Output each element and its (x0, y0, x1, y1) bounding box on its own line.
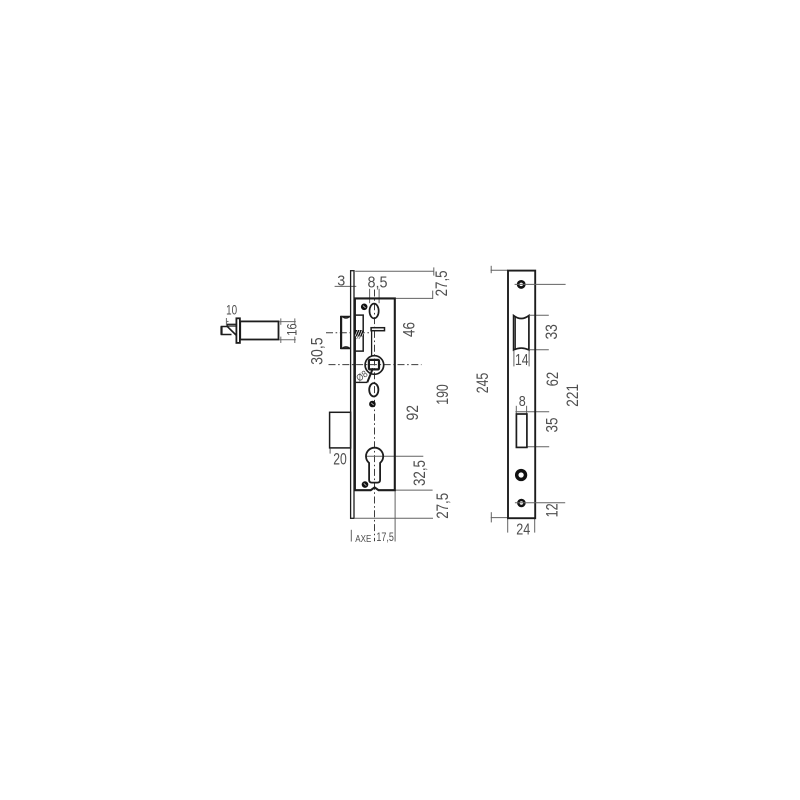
svg-text:24: 24 (516, 521, 530, 538)
svg-text:32,5: 32,5 (411, 460, 429, 486)
svg-text:AXE: AXE (355, 534, 371, 545)
svg-text:10: 10 (226, 303, 237, 318)
svg-text:8,5: 8,5 (368, 274, 388, 291)
svg-text:17,5: 17,5 (376, 532, 394, 544)
svg-text:33: 33 (543, 324, 561, 340)
svg-text:14: 14 (515, 352, 529, 369)
svg-text:12: 12 (543, 503, 561, 517)
svg-text:190: 190 (434, 384, 452, 405)
svg-text:27,5: 27,5 (434, 493, 452, 519)
svg-text:27,5: 27,5 (433, 270, 451, 296)
svg-text:35: 35 (543, 418, 561, 433)
svg-text:62: 62 (544, 372, 562, 387)
svg-text:3: 3 (337, 273, 345, 290)
svg-text:221: 221 (564, 384, 582, 407)
svg-text:245: 245 (474, 373, 492, 394)
svg-text:20: 20 (333, 451, 347, 469)
svg-text:46: 46 (401, 322, 419, 337)
svg-text:16: 16 (284, 323, 300, 336)
svg-text:8: 8 (519, 394, 526, 410)
svg-text:30,5: 30,5 (308, 337, 326, 365)
svg-text:92: 92 (404, 405, 422, 421)
